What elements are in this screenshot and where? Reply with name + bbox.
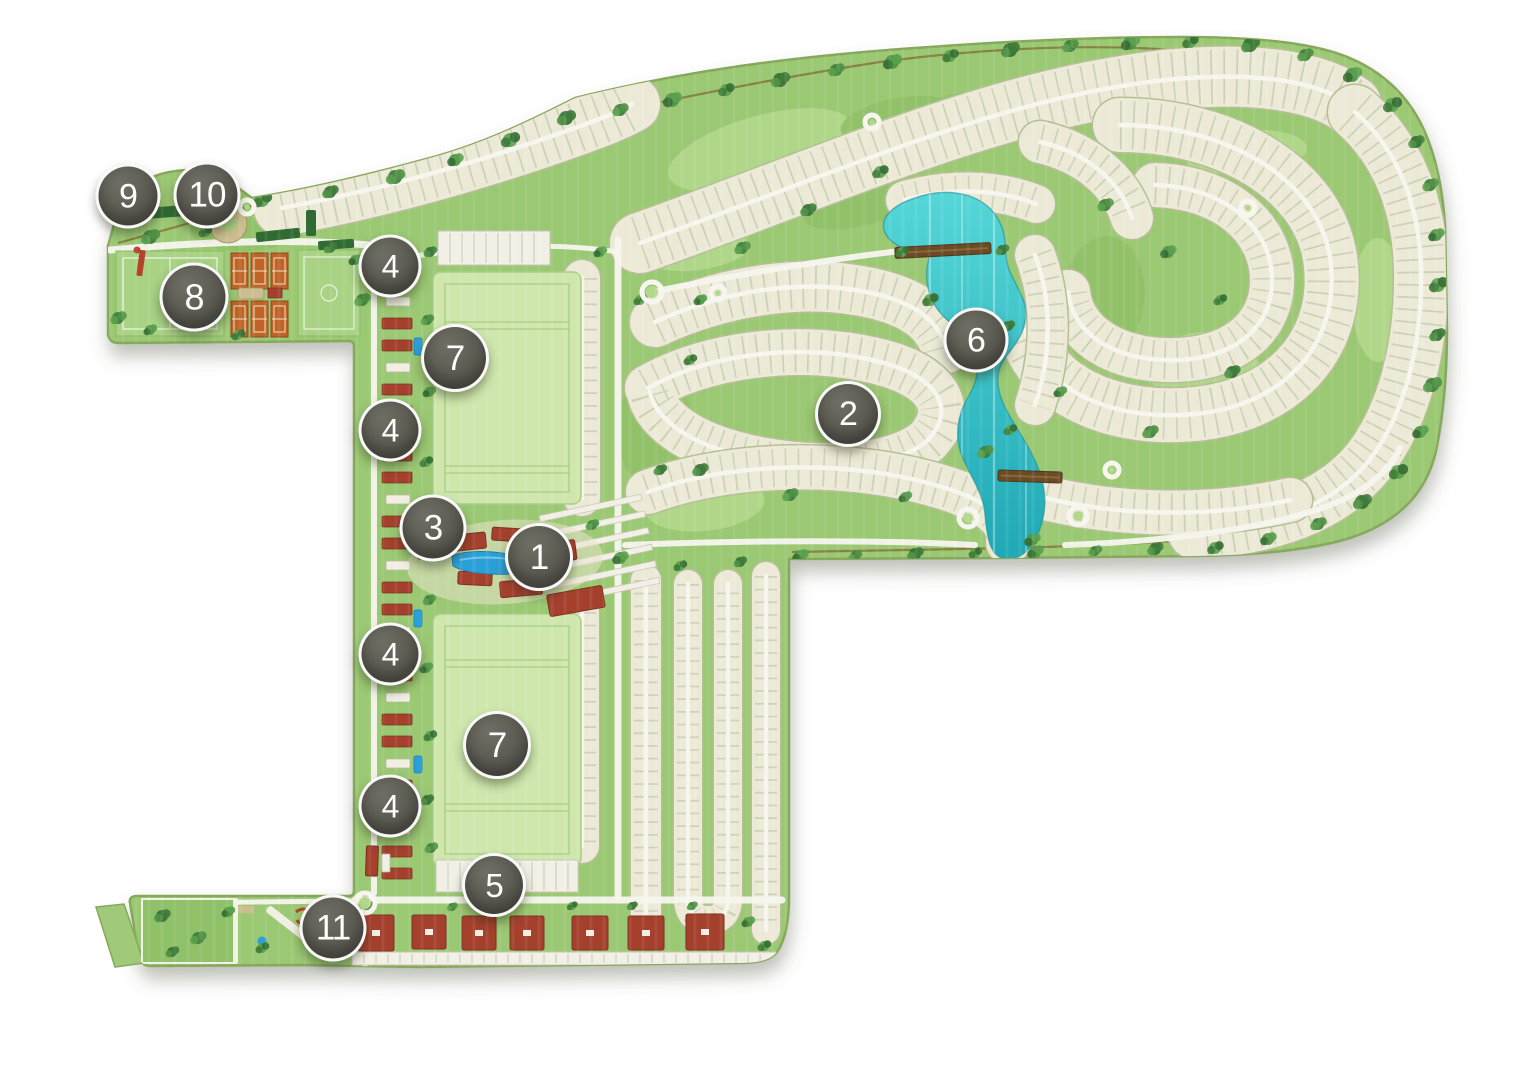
map-markers: 12344445677891011 (0, 0, 1528, 1080)
marker-number: 2 (839, 397, 857, 431)
marker-number: 1 (530, 540, 548, 575)
map-marker-4-north[interactable]: 4 (359, 235, 422, 298)
marker-number: 11 (316, 911, 350, 946)
marker-number: 7 (446, 341, 464, 376)
map-marker-7-south[interactable]: 7 (463, 711, 531, 779)
marker-number: 10 (189, 178, 226, 213)
site-plan: 12344445677891011 (0, 0, 1528, 1080)
map-marker-8[interactable]: 8 (160, 263, 229, 332)
map-marker-4-south[interactable]: 4 (359, 775, 422, 838)
map-marker-3[interactable]: 3 (400, 495, 467, 562)
marker-number: 4 (382, 414, 399, 446)
map-marker-5[interactable]: 5 (462, 853, 526, 917)
map-marker-9[interactable]: 9 (96, 164, 161, 229)
map-marker-4-mid-north[interactable]: 4 (359, 399, 422, 462)
marker-number: 4 (382, 638, 399, 670)
marker-number: 4 (382, 250, 399, 282)
map-marker-1[interactable]: 1 (505, 523, 573, 591)
marker-number: 5 (485, 869, 502, 902)
marker-number: 9 (119, 179, 137, 213)
marker-number: 7 (488, 728, 506, 763)
map-marker-10[interactable]: 10 (174, 162, 241, 229)
marker-number: 8 (184, 279, 203, 315)
map-marker-4-mid-south[interactable]: 4 (359, 623, 422, 686)
map-marker-6[interactable]: 6 (944, 308, 1009, 373)
map-marker-2[interactable]: 2 (815, 381, 881, 447)
map-marker-11[interactable]: 11 (300, 895, 367, 962)
marker-number: 3 (424, 511, 442, 546)
marker-number: 6 (967, 323, 985, 357)
map-marker-7-north[interactable]: 7 (421, 324, 489, 392)
marker-number: 4 (382, 790, 399, 822)
